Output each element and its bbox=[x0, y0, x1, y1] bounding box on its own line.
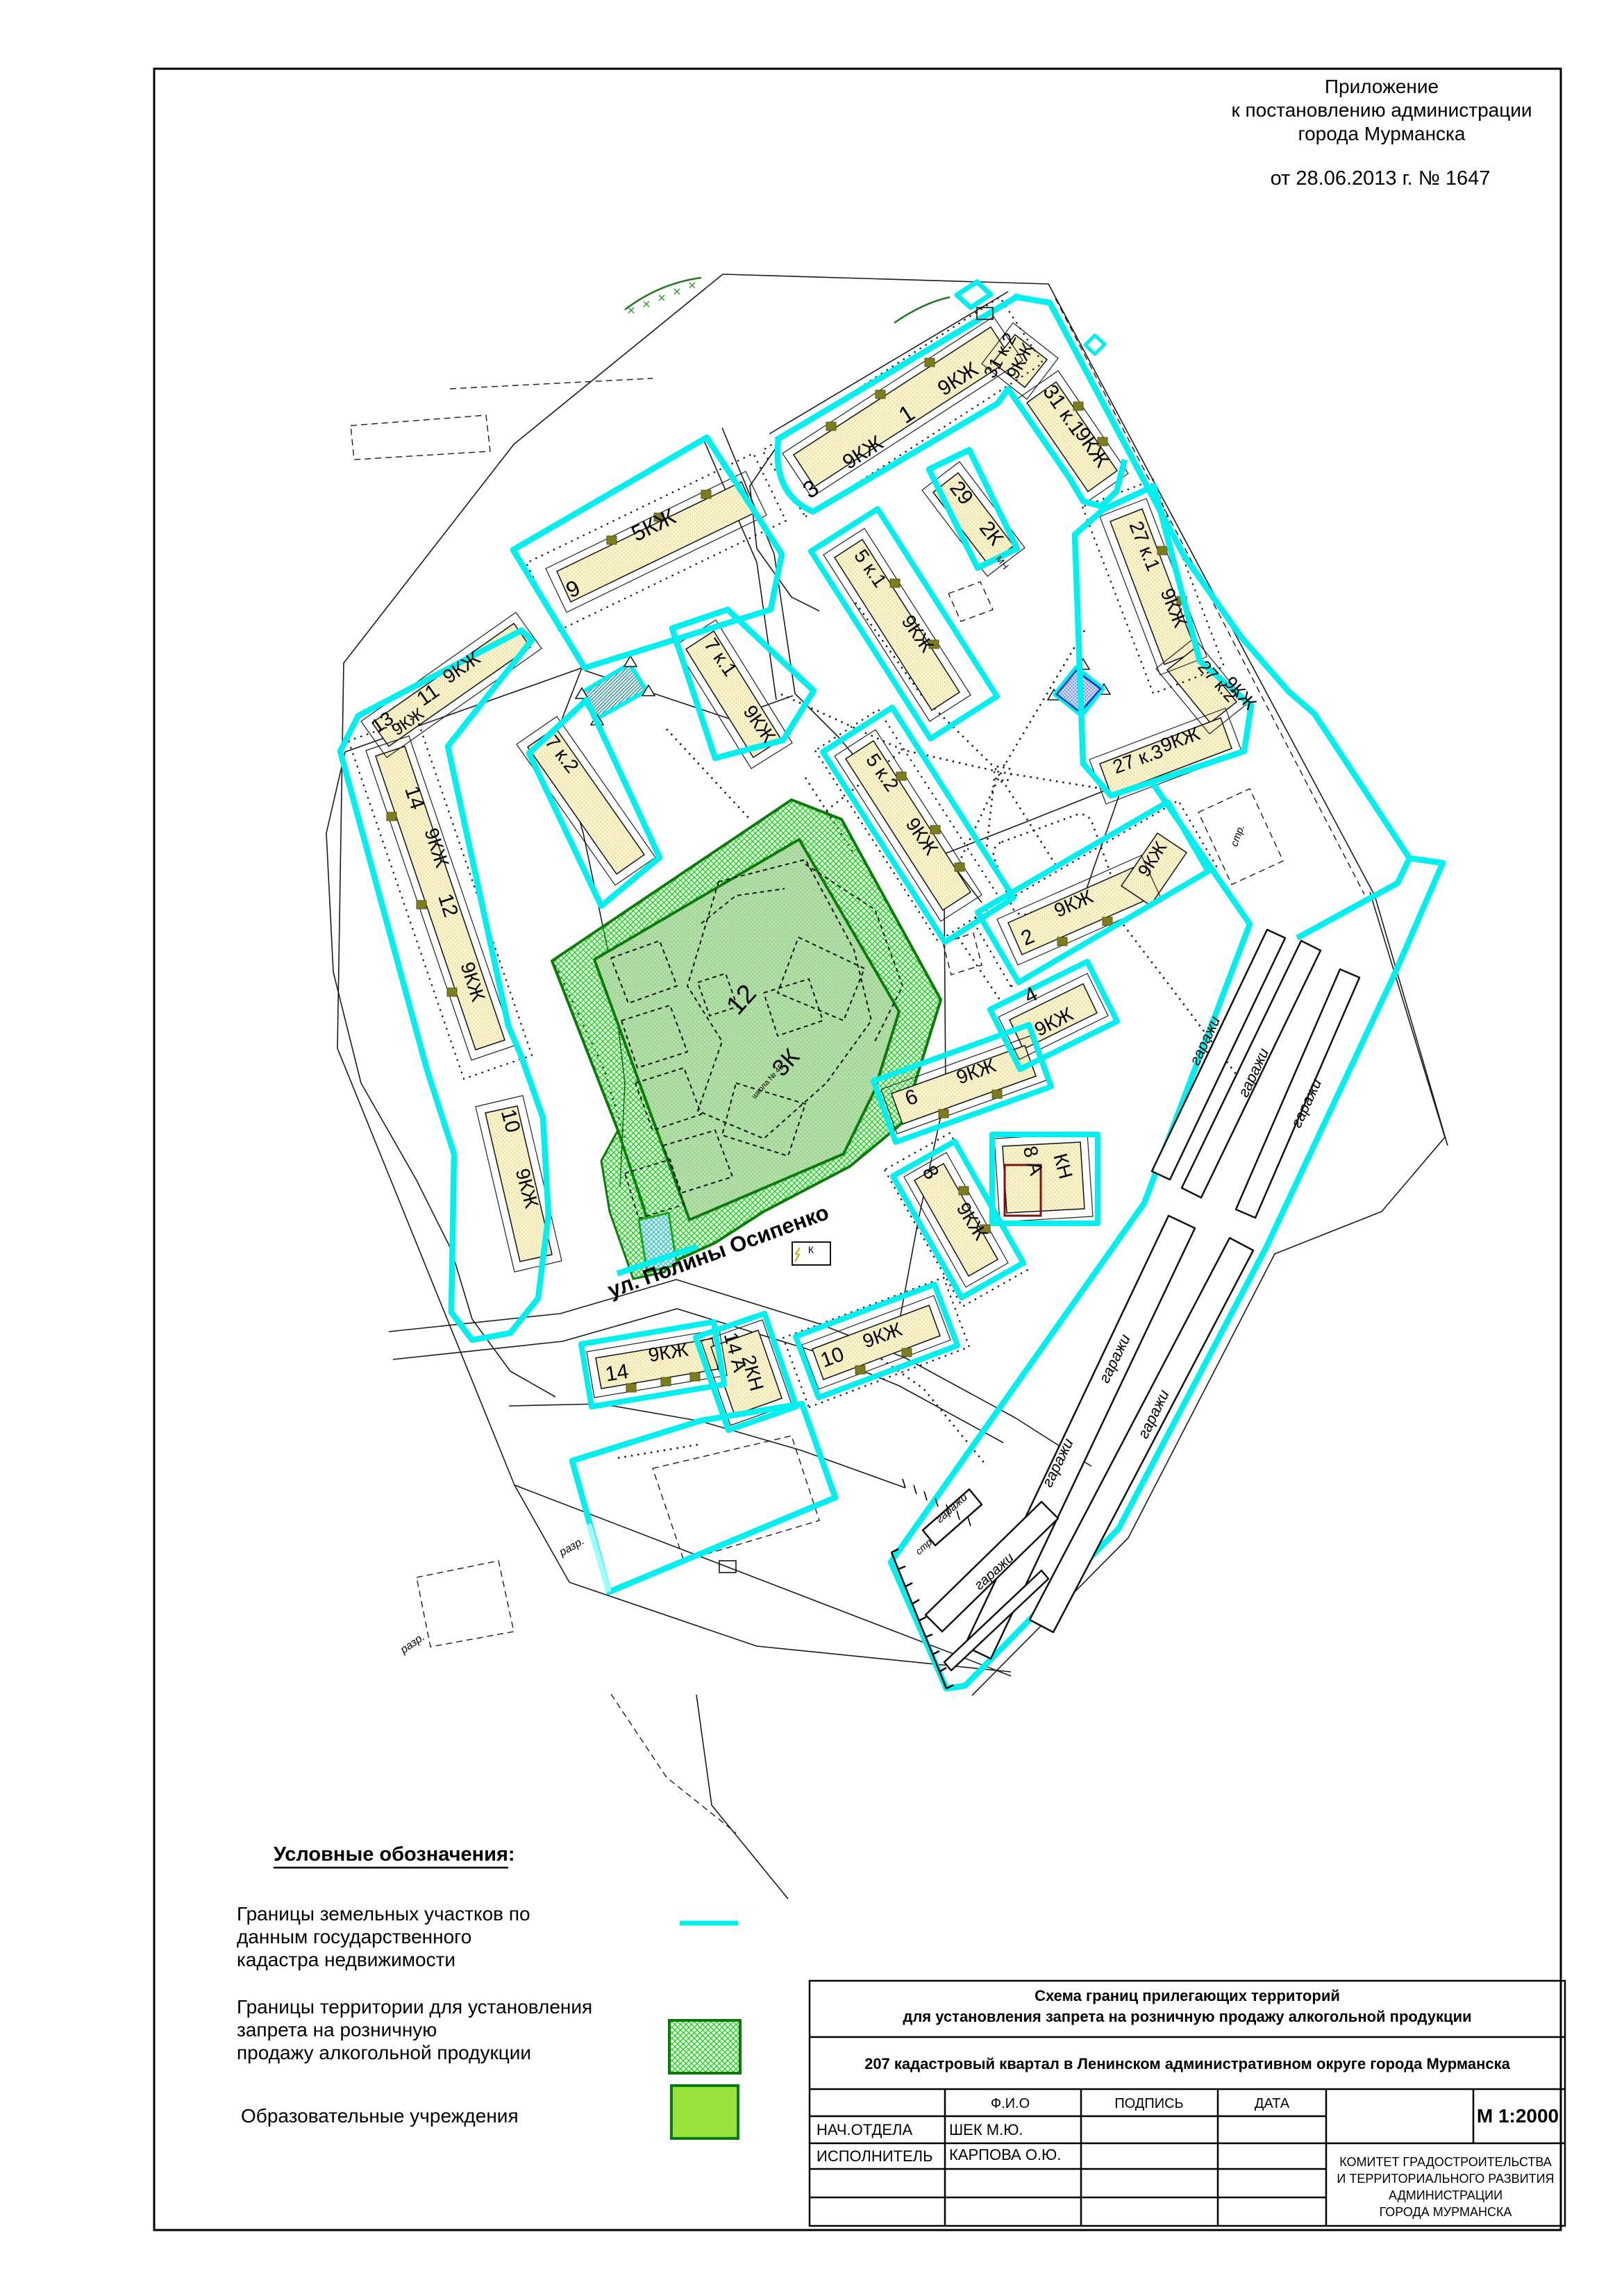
svg-text:Ф.И.О: Ф.И.О bbox=[991, 2096, 1030, 2111]
svg-text:к постановлению администрации: к постановлению администрации bbox=[1231, 99, 1532, 121]
svg-text:14: 14 bbox=[603, 1360, 630, 1386]
svg-text:Границы земельных участков по: Границы земельных участков по bbox=[237, 1903, 530, 1925]
svg-text:данным государственного: данным государственного bbox=[237, 1926, 471, 1947]
svg-text:М 1:2000: М 1:2000 bbox=[1477, 2105, 1559, 2127]
svg-text:И ТЕРРИТОРИАЛЬНОГО РАЗВИТИЯ: И ТЕРРИТОРИАЛЬНОГО РАЗВИТИЯ bbox=[1337, 2172, 1554, 2186]
svg-text:ШЕК М.Ю.: ШЕК М.Ю. bbox=[949, 2121, 1023, 2138]
svg-text:кадастра недвижимости: кадастра недвижимости bbox=[237, 1949, 455, 1970]
svg-text:Границы территории для установ: Границы территории для установления bbox=[237, 1996, 592, 2018]
svg-text:АДМИНИСТРАЦИИ: АДМИНИСТРАЦИИ bbox=[1389, 2188, 1502, 2202]
svg-text:КАРПОВА О.Ю.: КАРПОВА О.Ю. bbox=[949, 2146, 1061, 2163]
svg-text:Условные обозначения:: Условные обозначения: bbox=[274, 1843, 515, 1866]
svg-text:НАЧ.ОТДЕЛА: НАЧ.ОТДЕЛА bbox=[817, 2121, 912, 2138]
svg-text:города Мурманска: города Мурманска bbox=[1298, 123, 1465, 144]
svg-text:ДАТА: ДАТА bbox=[1255, 2096, 1290, 2111]
svg-text:от 28.06.2013 г. № 1647: от 28.06.2013 г. № 1647 bbox=[1271, 167, 1491, 190]
svg-text:ГОРОДА МУРМАНСКА: ГОРОДА МУРМАНСКА bbox=[1380, 2205, 1512, 2219]
svg-text:ПОДПИСЬ: ПОДПИСЬ bbox=[1114, 2096, 1183, 2111]
svg-text:К: К bbox=[808, 1244, 814, 1255]
svg-text:207 кадастровый квартал в Лени: 207 кадастровый квартал в Ленинском адми… bbox=[864, 2055, 1511, 2072]
svg-text:Образовательные учреждения: Образовательные учреждения bbox=[241, 2105, 519, 2127]
svg-text:продажу алкогольной продукции: продажу алкогольной продукции bbox=[237, 2042, 531, 2063]
svg-text:Приложение: Приложение bbox=[1325, 76, 1439, 97]
svg-text:Схема границ прилегающих терри: Схема границ прилегающих территорий bbox=[1035, 1987, 1340, 2004]
svg-text:запрета на розничную: запрета на розничную bbox=[237, 2019, 437, 2041]
svg-text:ИСПОЛНИТЕЛЬ: ИСПОЛНИТЕЛЬ bbox=[817, 2147, 933, 2165]
svg-text:КОМИТЕТ ГРАДОСТРОИТЕЛЬСТВА: КОМИТЕТ ГРАДОСТРОИТЕЛЬСТВА bbox=[1339, 2155, 1552, 2169]
svg-text:для установления запрета на ро: для установления запрета на розничную пр… bbox=[903, 2008, 1471, 2025]
